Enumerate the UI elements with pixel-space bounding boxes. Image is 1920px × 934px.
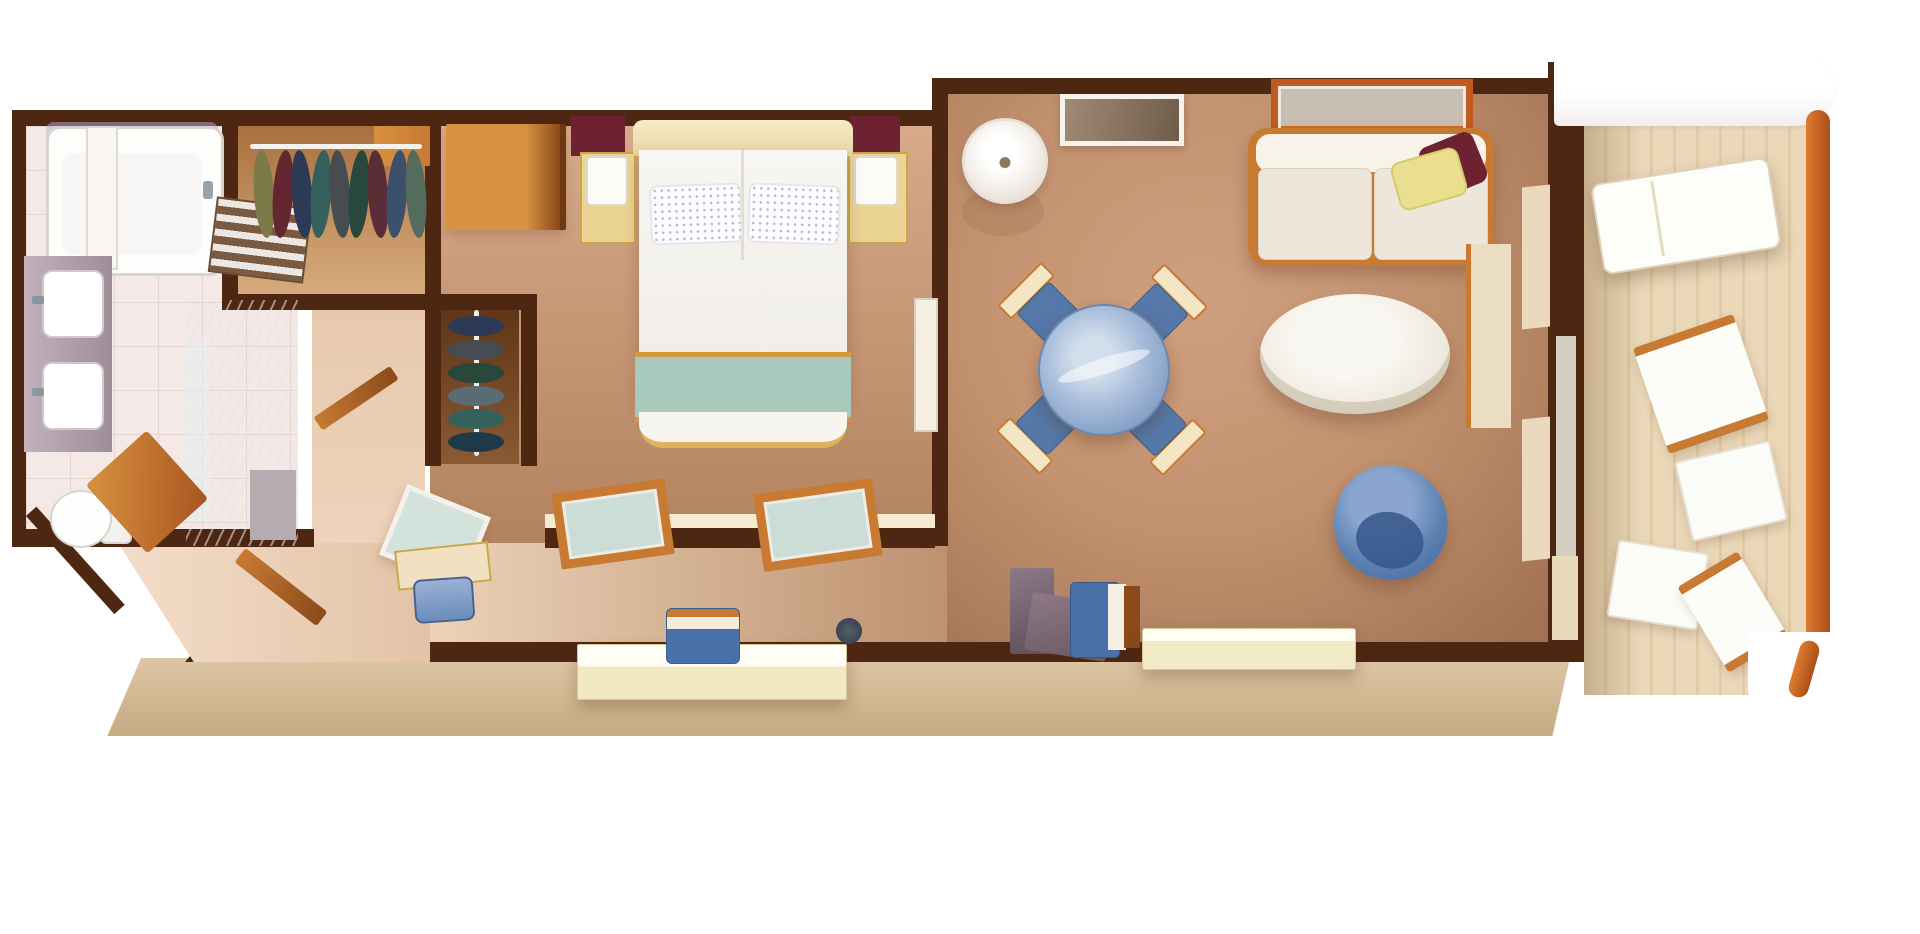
balcony-glass-door <box>1556 336 1576 558</box>
second-closet-left-wall <box>425 294 441 466</box>
table-lamp-right <box>854 156 898 206</box>
armchair-seat <box>1350 505 1430 576</box>
balcony-door-frame <box>1552 556 1578 640</box>
faucet-1 <box>32 296 44 304</box>
hanging-garment <box>448 316 504 336</box>
accent-panel-right <box>850 116 900 154</box>
dining-table <box>1038 304 1170 436</box>
table-lamp-left <box>586 156 628 206</box>
wall-art <box>1060 94 1184 146</box>
hanging-garment <box>448 386 504 406</box>
hanging-garment <box>448 409 504 429</box>
vanity-sink-1 <box>42 270 104 338</box>
sideboard <box>1142 628 1356 670</box>
hanging-garment <box>448 432 504 452</box>
hanging-garment <box>448 363 504 383</box>
tall-cabinet <box>1466 244 1511 428</box>
wardrobe <box>446 124 566 230</box>
closet-rail <box>250 144 422 149</box>
shower-bench <box>250 470 296 540</box>
bathtub-faucet <box>203 181 213 199</box>
lounger-back-line <box>1650 181 1665 257</box>
bathtub <box>46 126 224 276</box>
curtain-panel <box>1522 417 1550 562</box>
hanging-garment <box>448 340 504 360</box>
deck-canopy <box>1554 54 1834 126</box>
table-highlight <box>1056 344 1152 389</box>
desk-side-wood <box>1124 586 1140 648</box>
second-closet-right-wall <box>521 294 537 466</box>
bathroom-cabinet <box>86 126 118 270</box>
bag <box>836 618 862 644</box>
bathtub-basin <box>63 153 201 255</box>
interior-door <box>914 298 938 432</box>
entry-floor <box>115 543 430 662</box>
accent-panel-left <box>571 116 625 156</box>
coffee-table <box>1260 294 1450 414</box>
floor-plan <box>0 0 1920 934</box>
faucet-2 <box>32 388 44 396</box>
living-top-wall <box>932 78 1584 94</box>
bed-pillow-left <box>649 182 743 245</box>
bedroom-window-1 <box>551 478 674 569</box>
floor-lamp <box>962 118 1048 204</box>
curtain-panel <box>1522 185 1550 330</box>
bed-foot-band <box>639 412 847 448</box>
bed-pillow-right <box>747 182 841 245</box>
sofa-seat-left <box>1258 168 1372 260</box>
bedroom-window-2 <box>753 478 883 572</box>
vanity-sink-2 <box>42 362 104 430</box>
desk-chair <box>666 608 740 664</box>
veranda-railing <box>1806 110 1830 680</box>
vanity-stool <box>413 576 476 624</box>
